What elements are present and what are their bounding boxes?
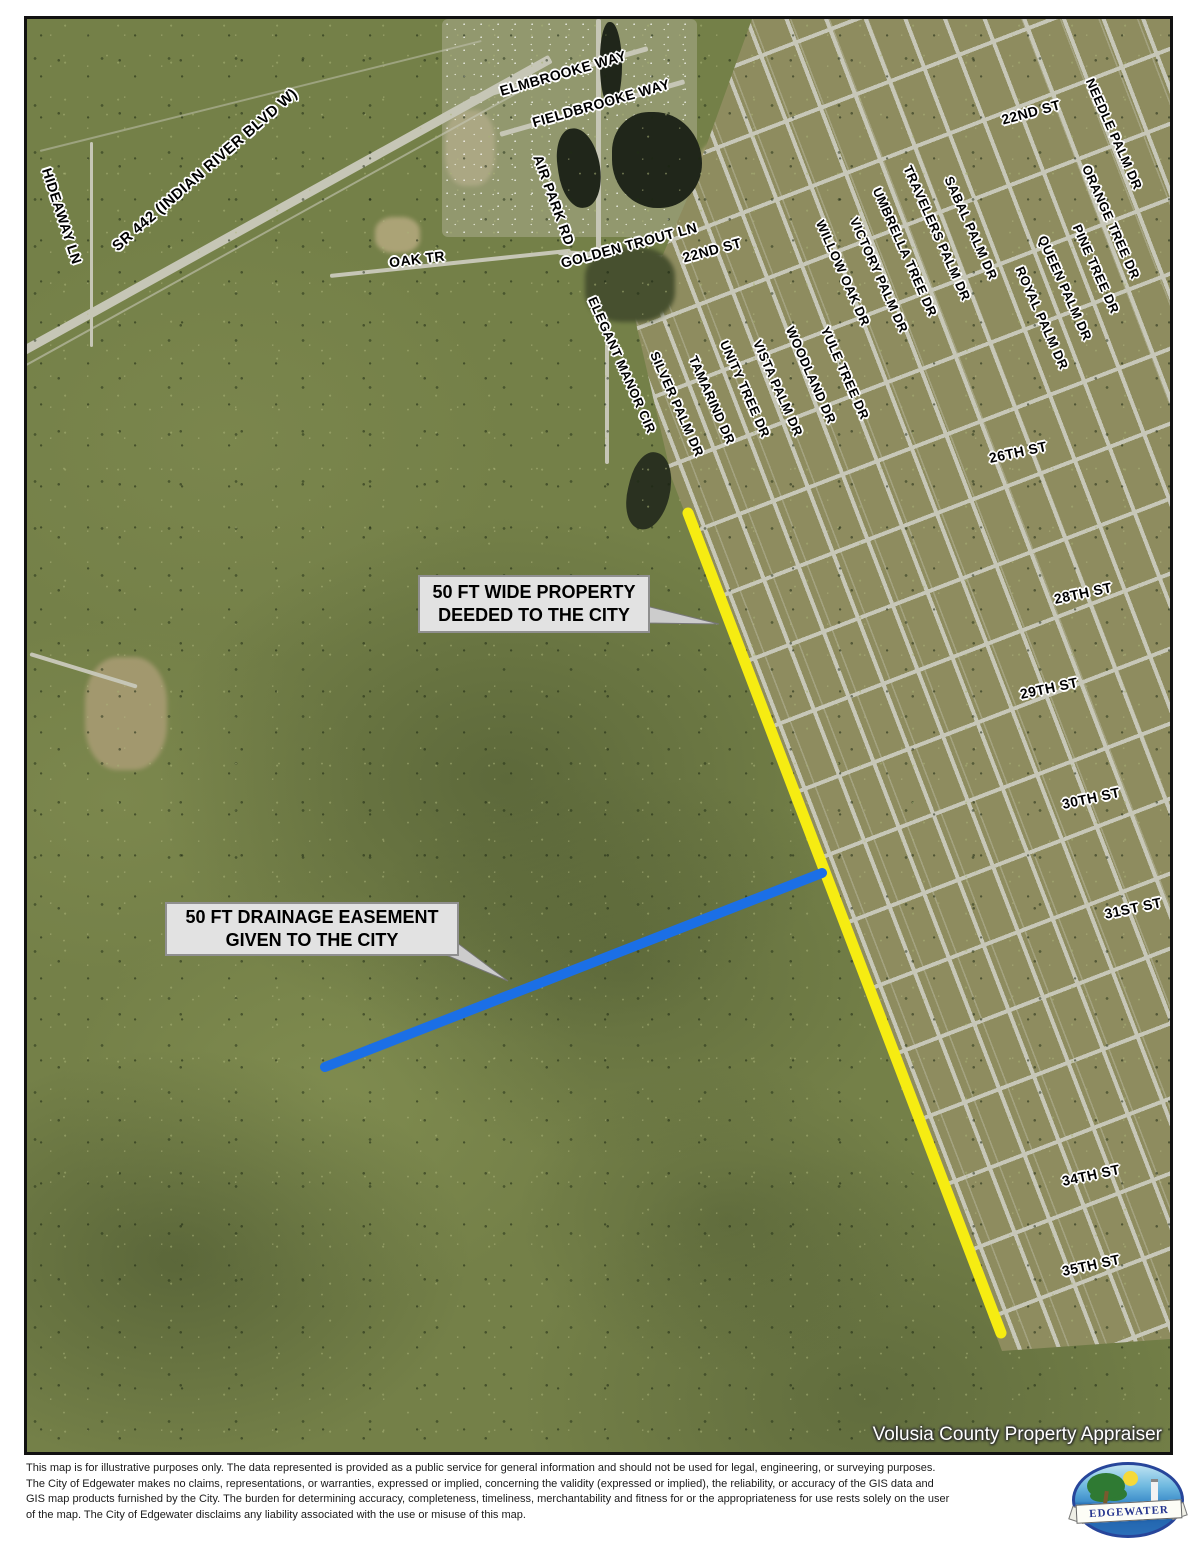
easement-callout-line1: 50 FT DRAINAGE EASEMENT (185, 906, 438, 929)
bare-earth-patch (375, 217, 420, 253)
easement-callout-line2: GIVEN TO THE CITY (226, 929, 399, 952)
deeded-callout-line1: 50 FT WIDE PROPERTY (432, 581, 635, 604)
easement-callout: 50 FT DRAINAGE EASEMENT GIVEN TO THE CIT… (165, 902, 459, 956)
disclaimer-line: of the map. The City of Edgewater discla… (26, 1508, 1046, 1524)
aerial-map: SR 442 (INDIAN RIVER BLVD W)HIDEAWAY LNO… (24, 16, 1173, 1455)
disclaimer-text: This map is for illustrative purposes on… (26, 1461, 1046, 1523)
deeded-callout-line2: DEEDED TO THE CITY (438, 604, 630, 627)
disclaimer-line: GIS map products furnished by the City. … (26, 1492, 1046, 1508)
edgewater-city-logo: EDGEWATER (1072, 1462, 1184, 1538)
sun-icon (1123, 1471, 1138, 1486)
disclaimer-line: This map is for illustrative purposes on… (26, 1461, 1046, 1477)
disclaimer-line: The City of Edgewater makes no claims, r… (26, 1477, 1046, 1493)
road-hideaway-ln (90, 142, 93, 347)
map-attribution: Volusia County Property Appraiser (873, 1424, 1162, 1446)
deeded-callout: 50 FT WIDE PROPERTY DEEDED TO THE CITY (418, 575, 650, 633)
page: { "map": { "attribution": "Volusia Count… (0, 0, 1200, 1553)
